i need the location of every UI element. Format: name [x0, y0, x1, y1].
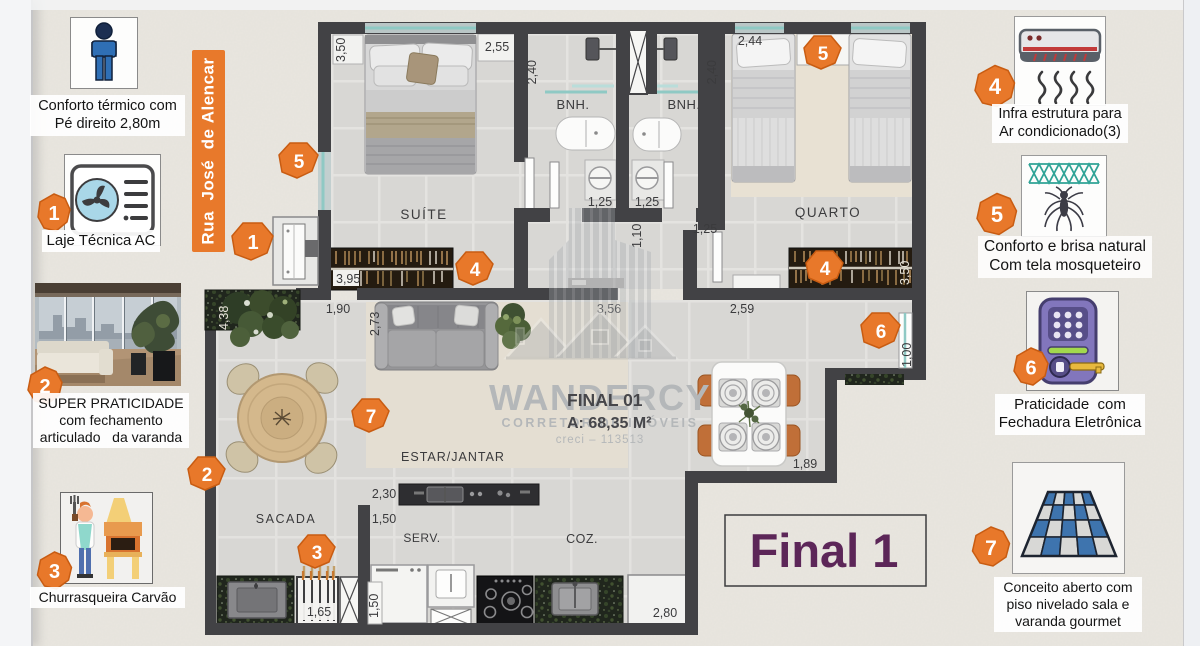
- svg-text:1: 1: [247, 232, 258, 254]
- svg-text:creci – 113513: creci – 113513: [556, 434, 645, 446]
- svg-text:5: 5: [818, 44, 829, 65]
- svg-text:7: 7: [366, 407, 377, 428]
- svg-text:1,89: 1,89: [793, 457, 817, 471]
- svg-text:BNH.: BNH.: [667, 97, 700, 112]
- svg-text:QUARTO: QUARTO: [795, 205, 861, 220]
- svg-text:2,80: 2,80: [653, 606, 677, 620]
- svg-text:3,95: 3,95: [336, 272, 360, 286]
- svg-text:SUÍTE: SUÍTE: [400, 207, 447, 222]
- svg-text:2,40: 2,40: [525, 60, 539, 84]
- svg-text:4,38: 4,38: [217, 306, 231, 330]
- svg-text:4: 4: [820, 259, 831, 280]
- svg-text:1,25: 1,25: [588, 195, 612, 209]
- svg-text:2,73: 2,73: [368, 312, 382, 336]
- svg-text:ESTAR/JANTAR: ESTAR/JANTAR: [401, 450, 505, 464]
- svg-text:2,30: 2,30: [372, 487, 396, 501]
- svg-text:1,10: 1,10: [630, 224, 644, 248]
- svg-text:1,00: 1,00: [900, 343, 914, 367]
- svg-text:2,44: 2,44: [738, 34, 762, 48]
- svg-text:FINAL 01: FINAL 01: [567, 390, 643, 410]
- svg-text:4: 4: [470, 260, 481, 281]
- svg-text:2,59: 2,59: [730, 302, 754, 316]
- svg-text:3: 3: [312, 543, 323, 564]
- svg-text:2: 2: [202, 465, 213, 486]
- svg-text:2,55: 2,55: [485, 40, 509, 54]
- svg-text:1,50: 1,50: [367, 594, 381, 618]
- svg-text:BNH.: BNH.: [556, 97, 589, 112]
- svg-text:3,50: 3,50: [334, 38, 348, 62]
- svg-text:A: 68,35 M²: A: 68,35 M²: [567, 415, 651, 432]
- svg-text:1,25: 1,25: [693, 222, 717, 236]
- svg-text:2,40: 2,40: [705, 60, 719, 84]
- svg-text:1,65: 1,65: [307, 605, 331, 619]
- svg-text:3,50: 3,50: [898, 261, 912, 285]
- svg-text:COZ.: COZ.: [566, 532, 598, 546]
- svg-text:SACADA: SACADA: [256, 512, 316, 526]
- svg-text:Final 1: Final 1: [750, 524, 899, 577]
- svg-text:6: 6: [876, 322, 887, 343]
- svg-text:1,90: 1,90: [326, 302, 350, 316]
- svg-text:1,25: 1,25: [635, 195, 659, 209]
- svg-text:5: 5: [294, 152, 305, 173]
- svg-text:1,50: 1,50: [372, 512, 396, 526]
- svg-text:SERV.: SERV.: [403, 531, 440, 545]
